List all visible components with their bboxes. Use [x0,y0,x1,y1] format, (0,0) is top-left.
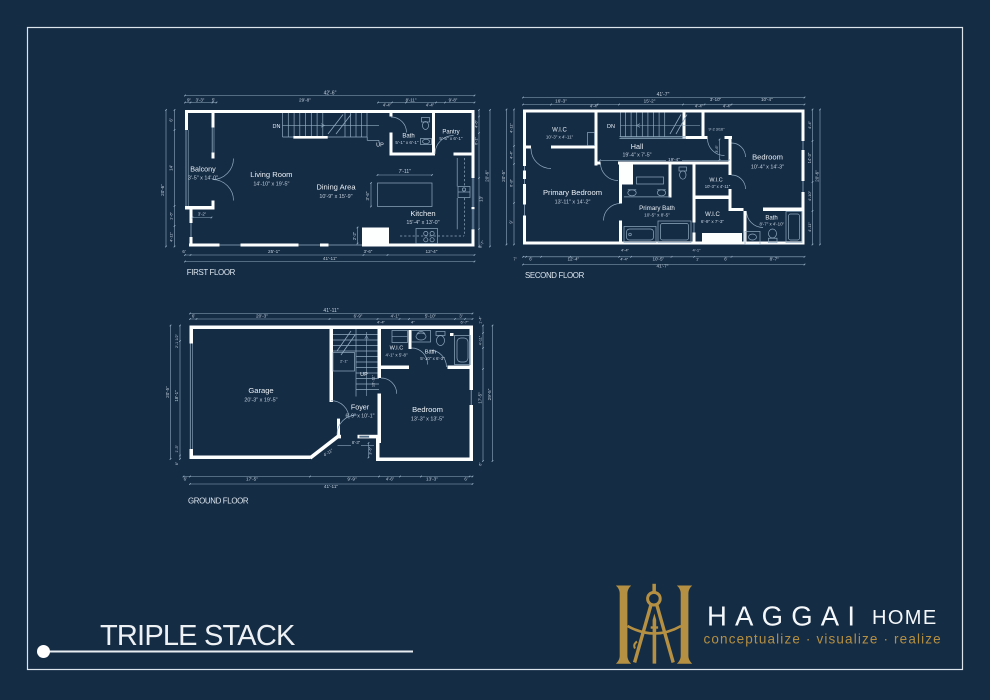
svg-text:1'-4": 1'-4" [478,316,482,324]
svg-text:13'-3" x 13'-5": 13'-3" x 13'-5" [411,417,444,423]
svg-text:2'-2": 2'-2" [352,231,357,240]
svg-text:10'-4": 10'-4" [761,97,773,102]
svg-text:3': 3' [459,313,462,318]
svg-text:20'-3": 20'-3" [256,313,268,318]
svg-text:9'-2 3/16": 9'-2 3/16" [708,128,725,132]
svg-text:3'-6": 3'-6" [367,446,372,455]
svg-text:6': 6' [182,249,185,254]
svg-text:6': 6' [529,256,532,261]
svg-text:W.I.C: W.I.C [709,178,722,184]
svg-text:4'-4": 4'-4" [723,104,732,109]
svg-text:6'-9" x 10'-1": 6'-9" x 10'-1" [345,414,374,420]
svg-text:Living Room: Living Room [250,170,292,179]
svg-text:18'-1": 18'-1" [174,390,179,402]
svg-text:19'-4" x 7'-5": 19'-4" x 7'-5" [622,153,651,159]
svg-text:20'-6": 20'-6" [814,170,819,182]
svg-text:Primary Bath: Primary Bath [639,205,675,212]
svg-text:10'-3" x 4'-11": 10'-3" x 4'-11" [546,135,574,140]
svg-text:Foyer: Foyer [351,403,370,412]
svg-text:3'-10": 3'-10" [710,97,722,102]
svg-text:GROUND FLOOR: GROUND FLOOR [188,497,249,506]
svg-text:5'-10": 5'-10" [425,313,437,318]
svg-text:2'-1 1/2": 2'-1 1/2" [175,333,179,348]
svg-text:3'-2": 3'-2" [198,212,207,217]
svg-text:6'-8": 6'-8" [508,178,513,187]
svg-text:20'-5": 20'-5" [501,170,506,182]
svg-text:4'-10": 4'-10" [807,190,812,201]
svg-text:3'-3": 3'-3" [196,97,205,102]
svg-text:10'-4" x 14'-3": 10'-4" x 14'-3" [751,165,784,171]
svg-text:W.I.C: W.I.C [552,128,567,134]
svg-text:Balcony: Balcony [190,165,216,174]
svg-text:4'-4": 4'-4" [590,104,599,109]
svg-text:conceptualize · visualize · re: conceptualize · visualize · realize [704,632,942,647]
svg-text:19'-4": 19'-4" [668,157,680,162]
svg-text:Bath: Bath [425,350,437,356]
svg-text:8'-7" x 4'-10": 8'-7" x 4'-10" [760,221,785,226]
svg-text:5'-10" x 6'-3": 5'-10" x 6'-3" [420,356,445,361]
svg-text:6': 6' [184,476,187,481]
svg-text:41'-11": 41'-11" [323,308,338,314]
svg-text:6': 6' [724,256,727,261]
svg-text:10'-5": 10'-5" [652,256,664,261]
svg-text:FIRST FLOOR: FIRST FLOOR [187,268,236,277]
svg-text:4'-6": 4'-6" [386,476,395,481]
svg-text:Bath: Bath [402,133,414,139]
svg-text:4'-11": 4'-11" [169,231,174,241]
svg-text:20'-6": 20'-6" [484,170,489,182]
svg-text:16'-3": 16'-3" [555,99,567,104]
svg-text:4'-6": 4'-6" [473,119,478,128]
svg-text:12'-4": 12'-4" [426,249,438,254]
svg-text:TRIPLE STACK: TRIPLE STACK [100,620,296,652]
svg-text:6': 6' [192,313,195,318]
svg-text:10'-3" x 4'-11": 10'-3" x 4'-11" [705,184,731,189]
svg-text:15'-11": 15'-11" [370,374,375,387]
svg-text:13'-11" x 14'-2": 13'-11" x 14'-2" [555,200,591,206]
svg-text:Hall: Hall [631,142,644,151]
svg-text:4'-11": 4'-11" [478,335,482,345]
svg-text:W.I.C: W.I.C [705,212,720,218]
svg-text:Kitchen: Kitchen [410,209,435,218]
svg-text:25'-1": 25'-1" [268,249,280,254]
svg-text:4'-4": 4'-4" [426,102,435,107]
svg-text:8'-3": 8'-3" [352,440,361,445]
svg-text:1'-3": 1'-3" [175,444,179,452]
svg-text:9': 9' [508,220,513,223]
svg-text:Bedroom: Bedroom [752,153,783,162]
svg-text:4'-1" x 5'-8": 4'-1" x 5'-8" [385,352,408,357]
svg-text:4'-4": 4'-4" [695,104,704,109]
svg-text:8'-11": 8'-11" [406,97,417,102]
svg-text:14'-3": 14'-3" [807,152,812,163]
svg-text:20'-5": 20'-5" [165,386,170,398]
svg-text:4'-11": 4'-11" [508,122,513,132]
svg-text:6'-1": 6'-1" [473,136,478,145]
svg-text:6': 6' [464,476,467,481]
svg-text:4'-4": 4'-4" [377,319,386,324]
svg-text:4'-11": 4'-11" [807,221,812,231]
svg-text:DN: DN [607,124,615,130]
svg-text:DN: DN [273,124,281,130]
svg-text:9": 9" [187,97,191,102]
svg-text:7'-11": 7'-11" [399,169,412,175]
svg-text:6'-9": 6'-9" [354,313,363,318]
svg-text:41'-11": 41'-11" [323,256,338,261]
svg-text:4'-4": 4'-4" [383,102,392,107]
svg-text:29'-8": 29'-8" [299,97,311,102]
svg-text:HOME: HOME [872,607,938,629]
svg-text:4'-4": 4'-4" [508,150,513,159]
svg-text:20'-6": 20'-6" [160,184,165,196]
svg-text:SECOND FLOOR: SECOND FLOOR [525,271,585,280]
svg-text:2'-1": 2'-1" [340,359,349,364]
svg-text:17'-5": 17'-5" [246,476,258,481]
svg-text:6': 6' [169,118,174,121]
svg-text:29'-5": 29'-5" [487,388,492,400]
svg-text:W.I.C: W.I.C [390,346,404,352]
svg-text:41'-7": 41'-7" [657,92,670,98]
svg-text:5': 5' [212,97,215,102]
svg-text:5'-1" x 6'-1": 5'-1" x 6'-1" [395,140,419,145]
svg-text:41'-7": 41'-7" [657,263,669,268]
svg-text:4": 4" [411,319,415,324]
svg-text:3'-6": 3'-6" [715,145,719,153]
svg-text:3'-5" x 14'-0": 3'-5" x 14'-0" [188,176,218,182]
svg-text:5'-5" x 6'-1": 5'-5" x 6'-1" [439,136,463,141]
svg-text:42'-6": 42'-6" [324,90,337,96]
svg-text:9'-9": 9'-9" [347,476,357,481]
svg-text:1'-6": 1'-6" [169,211,174,220]
svg-text:6'-9" x 7'-3": 6'-9" x 7'-3" [701,219,725,224]
svg-text:HAGGAI: HAGGAI [707,601,863,632]
svg-text:14': 14' [169,165,174,171]
svg-text:10'-9" x 15'-9": 10'-9" x 15'-9" [319,194,352,200]
svg-text:Pantry: Pantry [442,130,459,136]
svg-text:4'-4": 4'-4" [620,256,629,261]
svg-text:Primary Bedroom: Primary Bedroom [543,188,602,197]
svg-text:UP: UP [360,372,368,378]
svg-text:Dining Area: Dining Area [316,183,356,192]
svg-text:7': 7' [513,256,516,261]
svg-text:15'-2": 15'-2" [644,99,656,104]
svg-text:12'-4": 12'-4" [567,256,579,261]
svg-text:20'-3" x 19'-5": 20'-3" x 19'-5" [244,397,277,403]
svg-text:6'-7": 6'-7" [461,319,470,324]
svg-text:9'-8": 9'-8" [449,97,458,102]
svg-text:4'-1": 4'-1" [391,313,400,318]
svg-text:13': 13' [479,196,484,202]
svg-text:4'-4": 4'-4" [807,120,812,129]
svg-text:15'-4" x 13'-0": 15'-4" x 13'-0" [406,220,439,226]
svg-text:13'-3": 13'-3" [426,476,438,481]
svg-text:3'-6": 3'-6" [364,249,373,254]
svg-text:Garage: Garage [248,386,273,395]
svg-text:4'-1": 4'-1" [693,247,702,252]
svg-text:1': 1' [696,256,699,261]
svg-text:4'-4": 4'-4" [621,247,630,252]
svg-text:8'-7": 8'-7" [770,256,780,261]
svg-text:41'-11": 41'-11" [324,484,339,489]
svg-text:Bedroom: Bedroom [412,405,443,414]
svg-text:17'-5": 17'-5" [477,392,482,404]
svg-text:10'-5" x 8'-5": 10'-5" x 8'-5" [644,212,670,217]
svg-text:3'-6": 3'-6" [365,191,370,200]
svg-text:UP: UP [376,143,384,149]
svg-text:14'-10" x 19'-5": 14'-10" x 19'-5" [253,182,289,188]
